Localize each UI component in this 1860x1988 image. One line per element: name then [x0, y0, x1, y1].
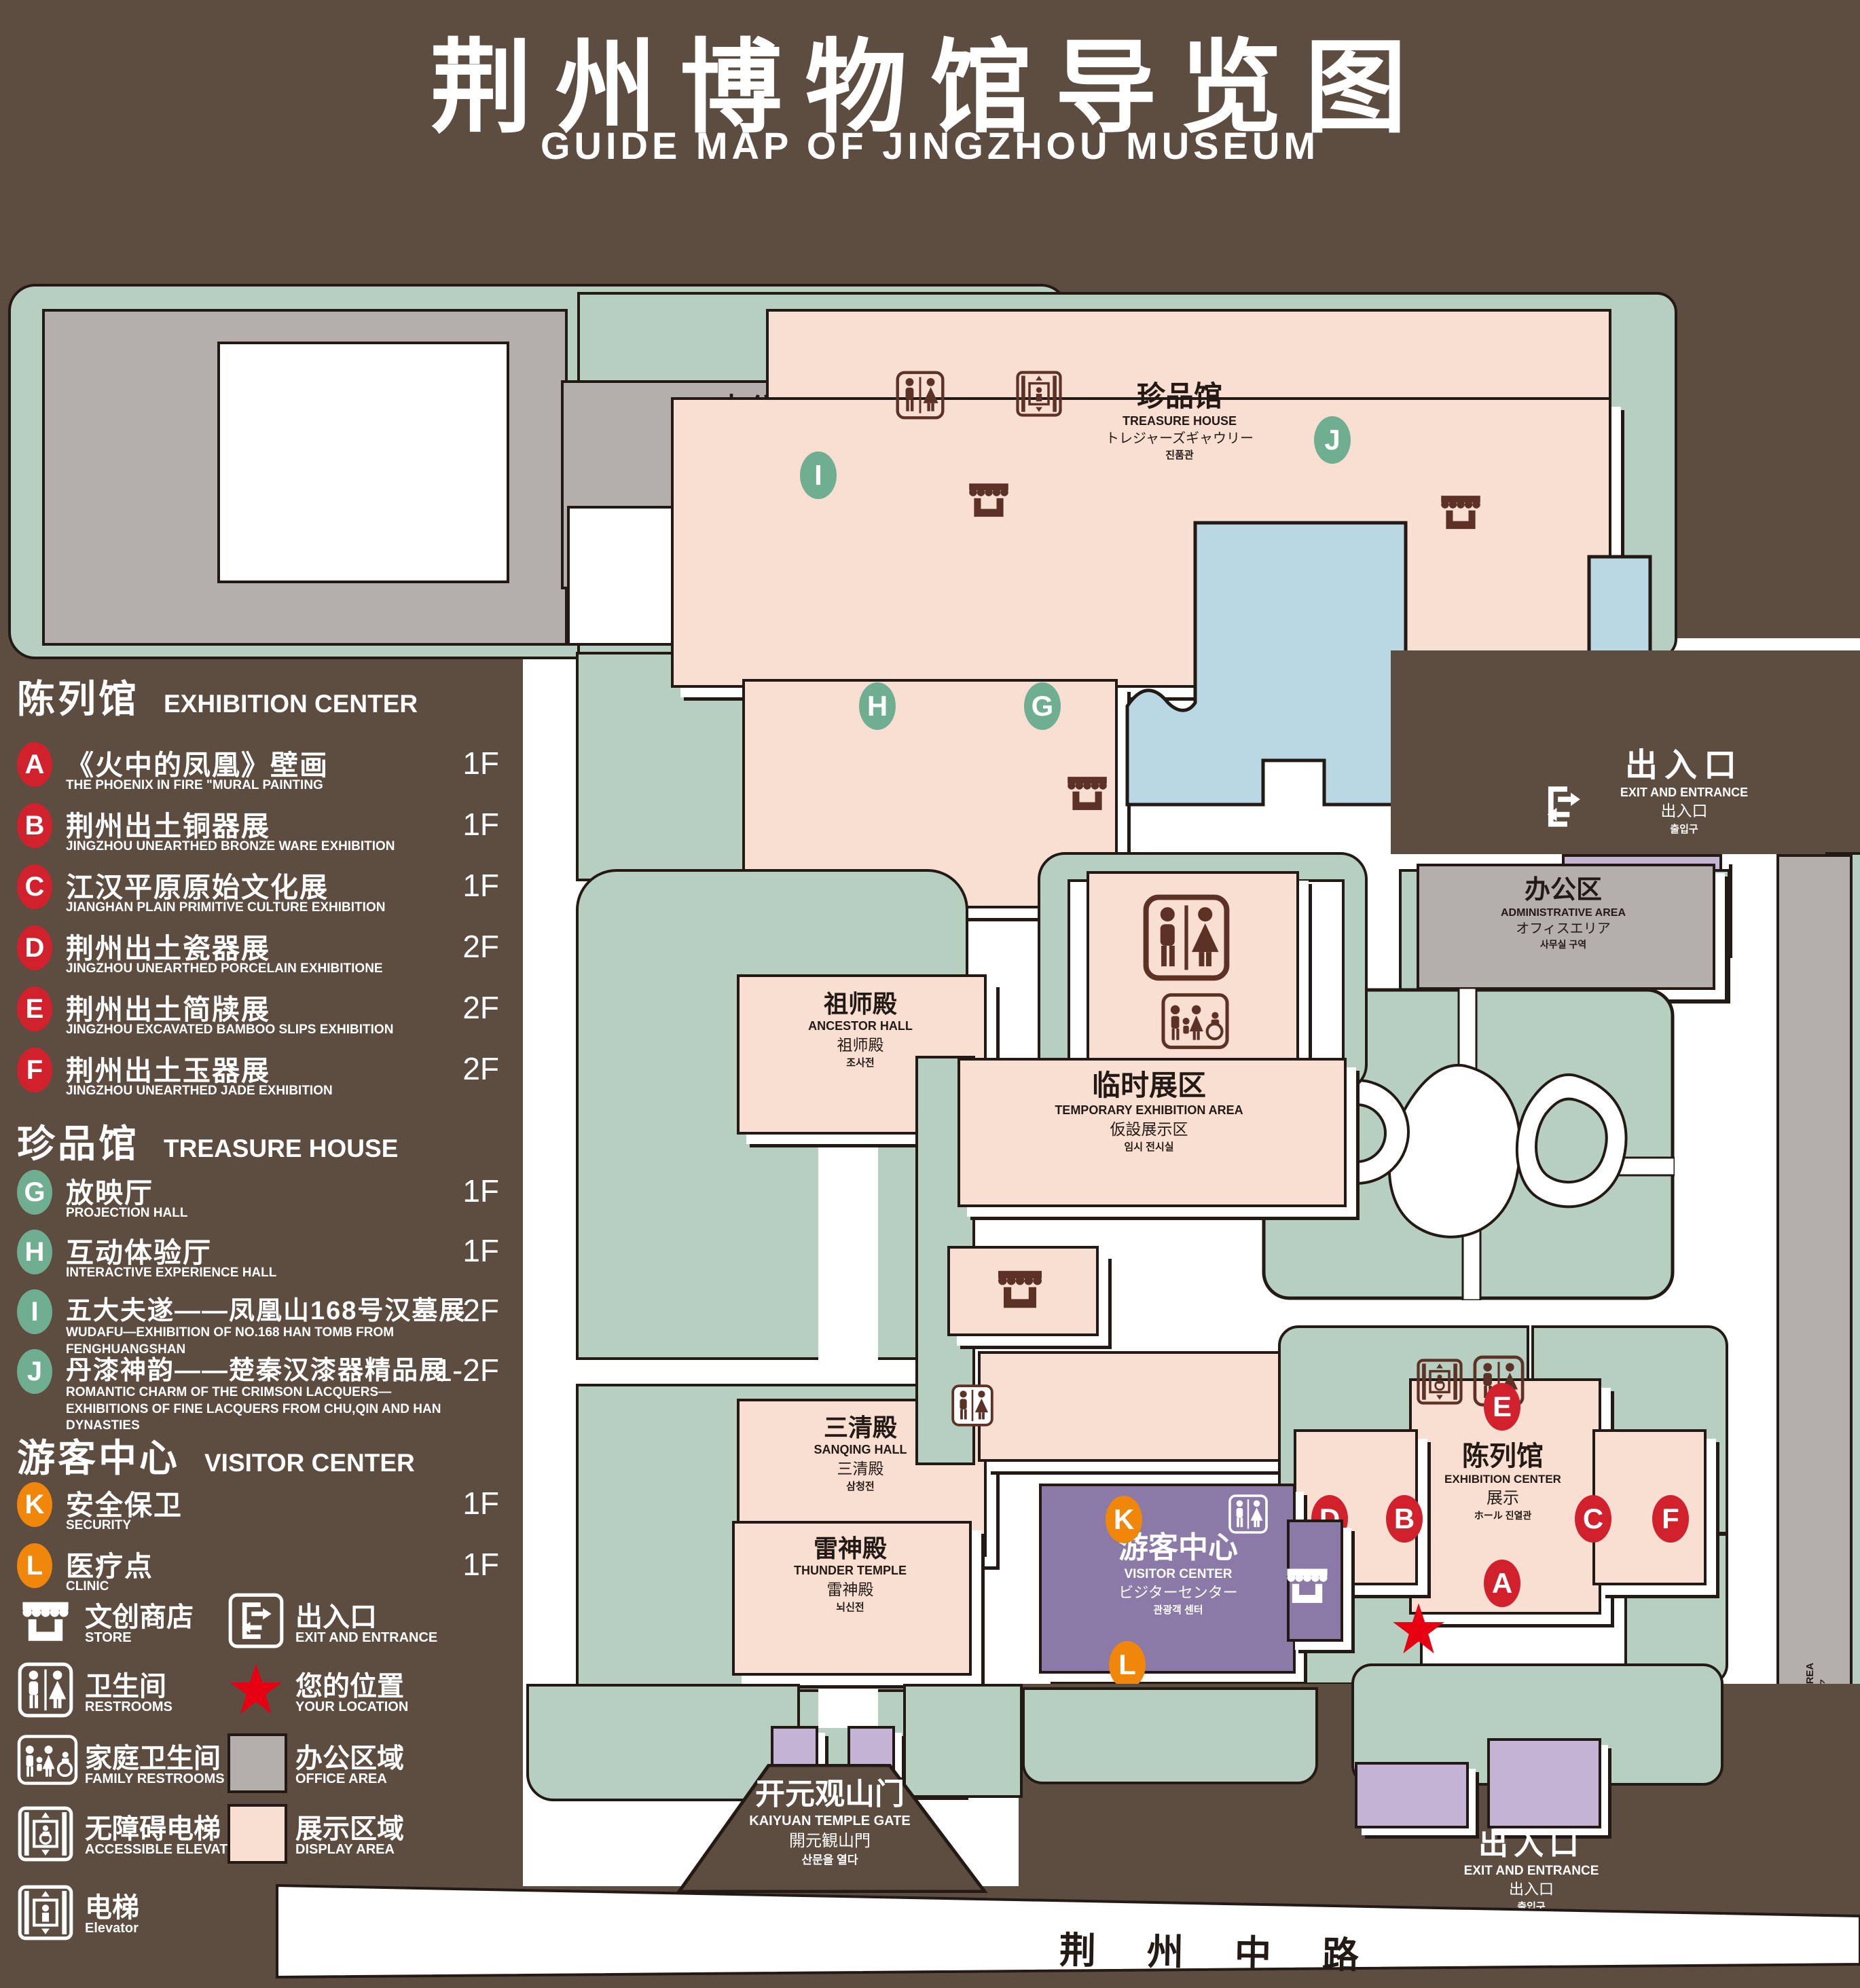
- entrance-building-bottom-right: [1487, 1738, 1601, 1828]
- map-badge-l: L: [1109, 1641, 1146, 1689]
- map-badge-a: A: [1484, 1560, 1520, 1607]
- map-badge-f: F: [1652, 1495, 1689, 1543]
- legend-display-area: 展示区域 DISPLAY AREA: [227, 1804, 287, 1864]
- legend-exit: 出入口 EXIT AND ENTRANCE: [227, 1592, 285, 1649]
- admin-courtyard: [217, 342, 509, 583]
- legend-store: 文创商店 STORE: [17, 1592, 74, 1645]
- legend-section-treasure: 珍品馆TREASURE HOUSE: [17, 1113, 398, 1168]
- legend-your-location: 您的位置 YOUR LOCATION: [227, 1661, 285, 1718]
- map-badge-e: E: [1484, 1383, 1520, 1431]
- elevator-icon: [17, 1883, 74, 1943]
- accessible-elevator-icon: [1416, 1357, 1463, 1407]
- map-badge-i: I: [800, 452, 837, 499]
- restroom-icon: [1135, 893, 1237, 982]
- restroom-icon: [951, 1380, 994, 1431]
- restroom-icon: [895, 370, 945, 420]
- badge-g: G: [17, 1170, 52, 1215]
- badge-a: A: [17, 742, 52, 787]
- badge-h: H: [17, 1230, 52, 1274]
- badge-f: F: [17, 1048, 52, 1092]
- display-area-swatch: [227, 1804, 287, 1864]
- exit-icon: [227, 1592, 285, 1649]
- axis-path-1: [818, 1119, 878, 1384]
- road-label: 荆 州 中 路: [1059, 1920, 1379, 1979]
- family-restroom-icon: [17, 1733, 78, 1786]
- badge-l: L: [17, 1543, 52, 1588]
- entrance-building-bottom-left: [1355, 1762, 1469, 1828]
- map-badge-k: K: [1106, 1496, 1142, 1543]
- family-restroom-icon: [1151, 993, 1239, 1050]
- map-badge-h: H: [859, 682, 896, 730]
- exit-icon: [1533, 774, 1592, 839]
- park-bottom-mid: [1022, 1687, 1318, 1784]
- gate-label: 开元观山门 KAIYUAN TEMPLE GATE 開元観山門 산문을 열다: [667, 1778, 993, 1869]
- map-badge-c: C: [1575, 1495, 1611, 1543]
- location-star-icon: [227, 1661, 285, 1718]
- exhibition-center-label: 陈列馆 EXHIBITION CENTER 展示 ホール 진열관: [1401, 1441, 1605, 1523]
- badge-e: E: [17, 987, 52, 1031]
- exhibition-center-right-wing: [1592, 1429, 1707, 1585]
- legend-section-visitor: 游客中心VISITOR CENTER: [17, 1428, 415, 1483]
- map-badge-g: G: [1024, 682, 1061, 730]
- badge-i: I: [17, 1289, 52, 1334]
- accessible-elevator-icon: [17, 1804, 74, 1864]
- legend-family-restroom: 家庭卫生间 FAMILY RESTROOMS: [17, 1733, 78, 1786]
- location-star-icon: [1389, 1601, 1448, 1658]
- badge-j: J: [17, 1349, 52, 1394]
- badge-b: B: [17, 803, 52, 848]
- map-badge-j: J: [1314, 416, 1351, 464]
- restroom-icon: [17, 1661, 74, 1718]
- thunder-temple-label: 雷神殿 THUNDER TEMPLE 雷神殿 뇌신전: [738, 1534, 962, 1615]
- store-icon: [1282, 1560, 1332, 1606]
- legend-panel: 陈列馆EXHIBITION CENTER A 《火中的凤凰》壁画 THE PHO…: [17, 669, 523, 1959]
- store-icon: [964, 475, 1013, 520]
- page-subtitle: GUIDE MAP OF JINGZHOU MUSEUM: [0, 124, 1860, 168]
- elevator-icon: [1015, 368, 1063, 420]
- legend-elevator: 电梯 Elevator: [17, 1883, 74, 1943]
- legend-section-exhibition: 陈列馆EXHIBITION CENTER: [17, 669, 418, 724]
- badge-c: C: [17, 864, 52, 909]
- legend-restroom: 卫生间 RESTROOMS: [17, 1661, 74, 1718]
- restroom-icon: [1228, 1494, 1269, 1534]
- visitor-center-label: 游客中心 VISITOR CENTER ビジターセンター 관광객 센터: [1056, 1531, 1300, 1617]
- store-icon: [1063, 769, 1112, 813]
- badge-d: D: [17, 925, 52, 970]
- admin-right-label: 办公区 ADMINISTRATIVE AREA オフィスエリア 사무실 구역: [1417, 876, 1709, 952]
- map-badge-b: B: [1386, 1495, 1423, 1543]
- store-icon: [17, 1592, 74, 1645]
- legend-office-area: 办公区域 OFFICE AREA: [227, 1733, 287, 1793]
- badge-k: K: [17, 1482, 52, 1527]
- store-icon: [993, 1262, 1047, 1312]
- legend-accessible-elevator: 无障碍电梯 ACCESSIBLE ELEVATOR: [17, 1804, 74, 1864]
- store-icon: [1436, 487, 1485, 532]
- office-area-swatch: [227, 1733, 287, 1793]
- temporary-label: 临时展区 TEMPORARY EXHIBITION AREA 仮設展示区 임시 …: [966, 1069, 1332, 1154]
